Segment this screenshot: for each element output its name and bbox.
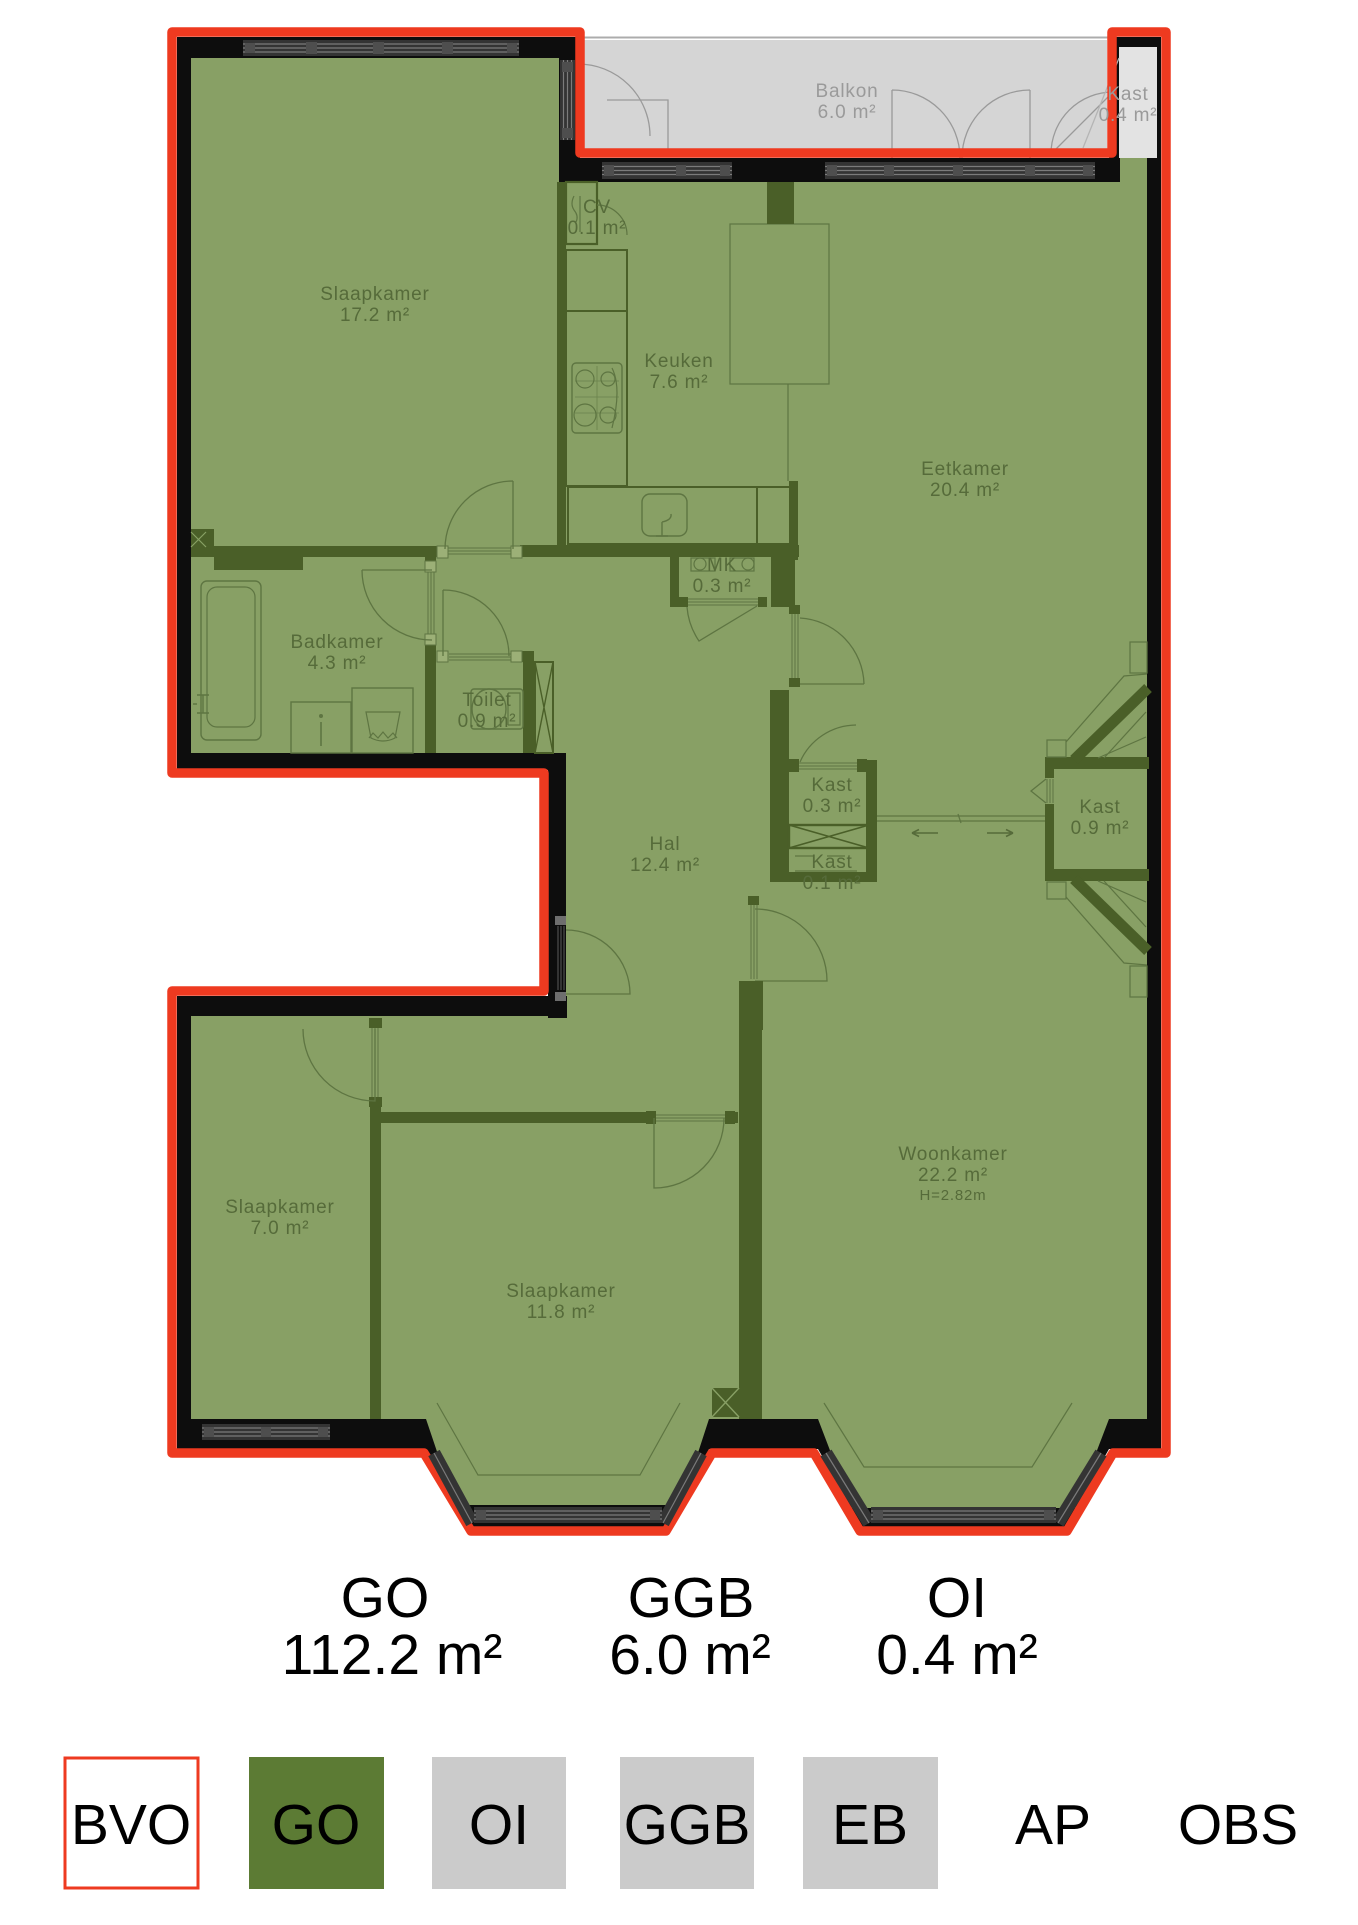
svg-text:Slaapkamer: Slaapkamer xyxy=(506,1281,615,1302)
svg-text:Kast: Kast xyxy=(811,775,852,796)
svg-text:12.4 m²: 12.4 m² xyxy=(630,855,700,876)
svg-text:GO: GO xyxy=(272,1793,361,1857)
svg-text:0.4 m²: 0.4 m² xyxy=(876,1623,1038,1687)
svg-text:OBS: OBS xyxy=(1178,1793,1298,1857)
svg-text:7.0 m²: 7.0 m² xyxy=(251,1218,310,1239)
svg-text:Toilet: Toilet xyxy=(462,690,511,711)
svg-text:Balkon: Balkon xyxy=(816,81,879,102)
svg-text:OI: OI xyxy=(927,1566,987,1630)
svg-text:AP: AP xyxy=(1015,1793,1091,1857)
svg-text:CV: CV xyxy=(583,197,611,218)
svg-text:GGB: GGB xyxy=(624,1793,751,1857)
svg-text:OI: OI xyxy=(469,1793,529,1857)
svg-text:11.8 m²: 11.8 m² xyxy=(527,1302,596,1323)
svg-text:Woonkamer: Woonkamer xyxy=(898,1144,1007,1165)
svg-text:22.2 m²: 22.2 m² xyxy=(918,1165,988,1186)
svg-text:Badkamer: Badkamer xyxy=(291,632,384,653)
svg-text:MK: MK xyxy=(707,555,737,576)
svg-text:H=2.82m: H=2.82m xyxy=(920,1187,987,1204)
svg-text:Kast: Kast xyxy=(1079,797,1120,818)
svg-text:0.3 m²: 0.3 m² xyxy=(803,796,862,817)
svg-text:BVO: BVO xyxy=(71,1793,191,1857)
svg-text:7.6 m²: 7.6 m² xyxy=(650,372,709,393)
svg-text:6.0 m²: 6.0 m² xyxy=(818,102,877,123)
svg-text:Hal: Hal xyxy=(650,834,681,855)
svg-text:Slaapkamer: Slaapkamer xyxy=(320,284,429,305)
svg-text:0.1 m²: 0.1 m² xyxy=(803,873,862,894)
svg-text:Slaapkamer: Slaapkamer xyxy=(225,1197,334,1218)
svg-text:112.2 m²: 112.2 m² xyxy=(282,1623,503,1687)
svg-text:Kast: Kast xyxy=(811,852,852,873)
svg-text:0.4 m²: 0.4 m² xyxy=(1099,105,1158,126)
svg-text:20.4 m²: 20.4 m² xyxy=(930,480,1000,501)
svg-text:0.3 m²: 0.3 m² xyxy=(693,576,752,597)
svg-text:Eetkamer: Eetkamer xyxy=(921,459,1009,480)
svg-text:GGB: GGB xyxy=(628,1566,755,1630)
svg-text:EB: EB xyxy=(832,1793,908,1857)
svg-text:6.0 m²: 6.0 m² xyxy=(609,1623,771,1687)
svg-text:0.1 m²: 0.1 m² xyxy=(568,218,627,239)
svg-text:0.9 m²: 0.9 m² xyxy=(458,711,517,732)
svg-text:GO: GO xyxy=(341,1566,430,1630)
svg-text:4.3 m²: 4.3 m² xyxy=(308,653,367,674)
svg-text:Keuken: Keuken xyxy=(644,351,713,372)
svg-text:Kast: Kast xyxy=(1107,84,1148,105)
svg-text:17.2 m²: 17.2 m² xyxy=(340,305,410,326)
svg-text:0.9 m²: 0.9 m² xyxy=(1071,818,1130,839)
